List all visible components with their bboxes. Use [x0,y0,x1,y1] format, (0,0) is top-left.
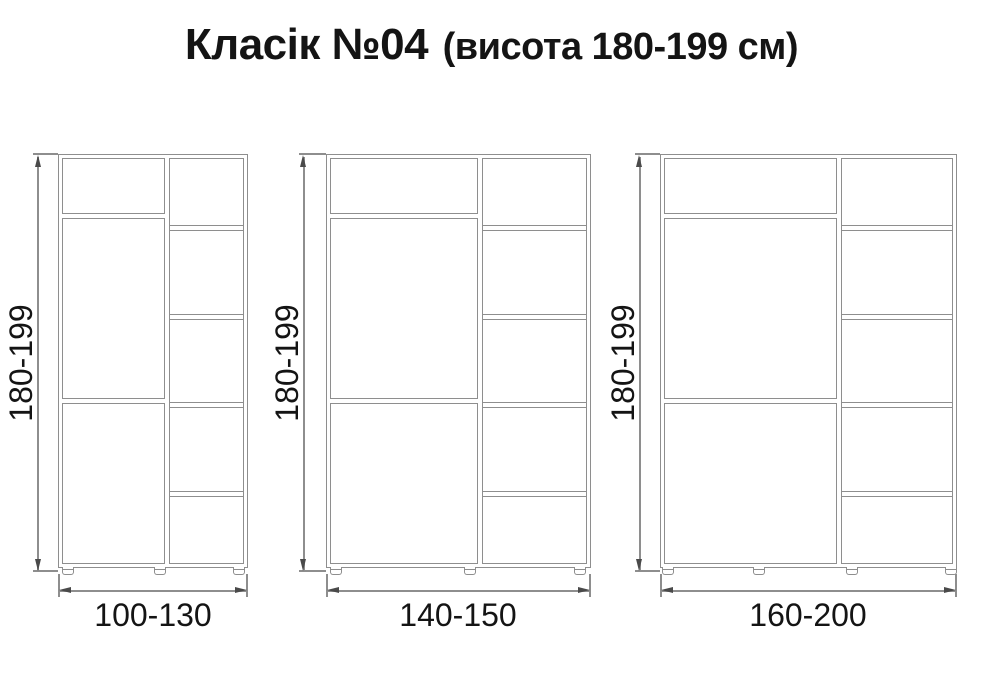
foot [574,567,586,575]
extension-line [660,574,662,597]
shelf-line [62,398,165,404]
height-dimension-label: 180-199 [269,283,305,443]
arrow-left-icon [327,587,339,593]
foot [62,567,74,575]
arrow-up-icon [35,155,41,167]
shelf-line [62,213,165,219]
cabinet-outline [58,154,248,568]
foot [233,567,245,575]
shelf-line [483,225,586,231]
foot [154,567,166,575]
foot [330,567,342,575]
arrow-down-icon [300,559,306,571]
shelf-line [170,491,243,497]
shelf-line [842,491,952,497]
arrow-right-icon [235,587,247,593]
width-dimension-label: 160-200 [693,597,923,634]
shelf-line [842,225,952,231]
arrow-down-icon [35,559,41,571]
title-subtitle: (висота 180-199 см) [443,26,799,68]
arrow-up-icon [636,155,642,167]
shelf-line [330,398,478,404]
shelf-line [170,225,243,231]
shelf-line [842,402,952,408]
extension-line [589,574,591,597]
shelf-line [664,398,837,404]
foot [753,567,765,575]
width-dimension-label: 100-130 [38,597,268,634]
shelf-line [170,402,243,408]
shelf-line [483,314,586,320]
arrow-left-icon [59,587,71,593]
width-dimension-line [328,590,589,592]
page-title: Класік №04 (висота 180-199 см) [0,20,983,70]
height-dimension-label: 180-199 [605,283,641,443]
foot [464,567,476,575]
width-dimension-line [662,590,955,592]
extension-line [955,574,957,597]
foot [662,567,674,575]
cabinet-outline [326,154,591,568]
title-main: Класік №04 [185,20,428,69]
arrow-up-icon [300,155,306,167]
arrow-right-icon [944,587,956,593]
foot [846,567,858,575]
shelf-line [842,314,952,320]
arrow-right-icon [578,587,590,593]
extension-line [246,574,248,597]
shelf-line [664,213,837,219]
extension-line [326,574,328,597]
width-dimension-line [60,590,246,592]
shelf-line [483,491,586,497]
shelf-line [483,402,586,408]
arrow-left-icon [661,587,673,593]
wardrobe-size-diagram: Класік №04 (висота 180-199 см) 180-199 [0,0,983,700]
extension-line [58,574,60,597]
arrow-down-icon [636,559,642,571]
cabinet-outline [660,154,957,568]
height-dimension-label: 180-199 [3,283,39,443]
shelf-line [330,213,478,219]
width-dimension-label: 140-150 [343,597,573,634]
shelf-line [170,314,243,320]
